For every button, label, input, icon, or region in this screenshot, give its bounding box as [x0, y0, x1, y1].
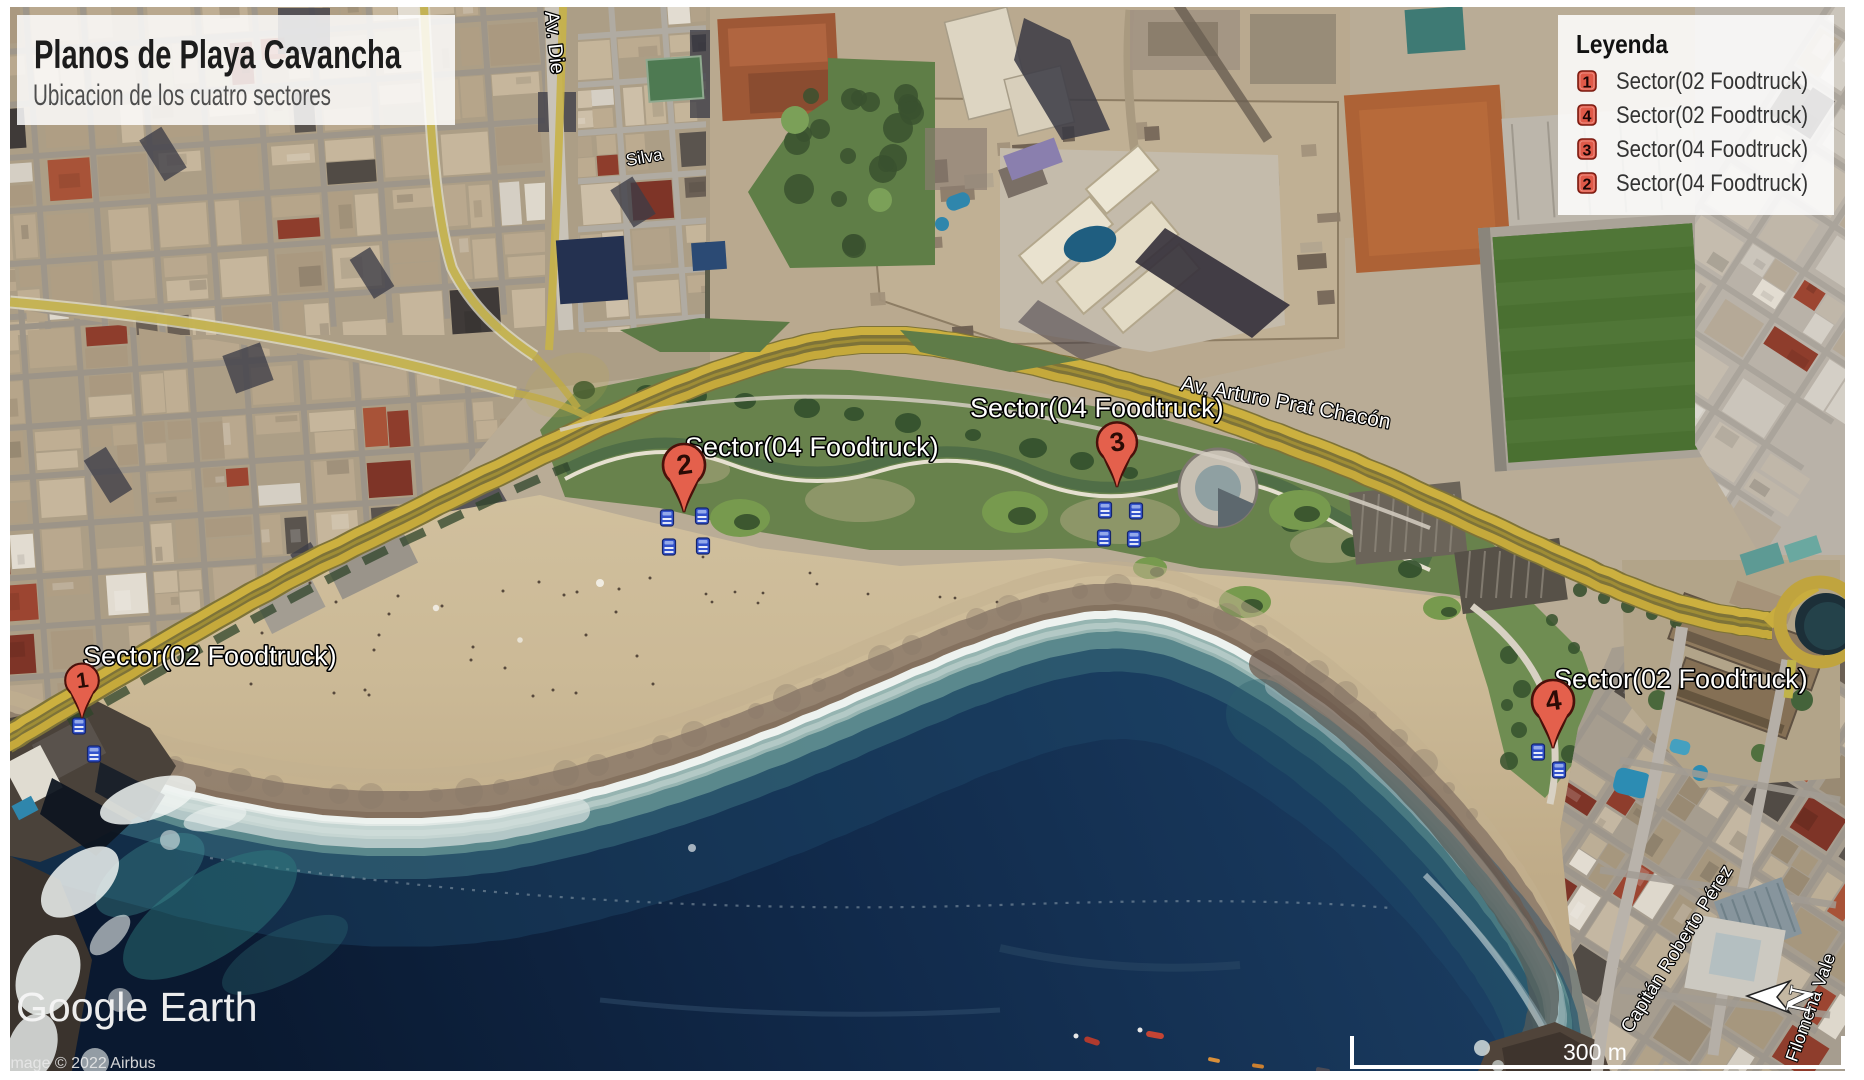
- svg-text:Leyenda: Leyenda: [1576, 29, 1668, 59]
- svg-text:Sector(04 Foodtruck): Sector(04 Foodtruck): [1616, 170, 1808, 197]
- svg-text:1: 1: [1583, 75, 1592, 92]
- svg-text:Planos de Playa Cavancha: Planos de Playa Cavancha: [34, 33, 402, 77]
- svg-text:Sector(02 Foodtruck): Sector(02 Foodtruck): [83, 641, 337, 671]
- svg-text:Ubicacion de los cuatro sector: Ubicacion de los cuatro sectores: [33, 79, 331, 112]
- svg-text:Sector(04 Foodtruck): Sector(04 Foodtruck): [1616, 136, 1808, 163]
- svg-text:Sector(02 Foodtruck): Sector(02 Foodtruck): [1616, 102, 1808, 129]
- svg-text:2: 2: [1583, 177, 1592, 194]
- svg-text:Sector(02 Foodtruck): Sector(02 Foodtruck): [1554, 664, 1808, 694]
- svg-text:4: 4: [1583, 109, 1592, 126]
- svg-text:Sector(04 Foodtruck): Sector(04 Foodtruck): [685, 432, 939, 462]
- svg-text:Sector(04 Foodtruck): Sector(04 Foodtruck): [970, 393, 1224, 423]
- svg-text:Image © 2022 Airbus: Image © 2022 Airbus: [6, 1055, 156, 1072]
- svg-text:3: 3: [1583, 143, 1592, 160]
- svg-text:Sector(02 Foodtruck): Sector(02 Foodtruck): [1616, 68, 1808, 95]
- svg-text:Google Earth: Google Earth: [16, 984, 258, 1030]
- svg-text:300 m: 300 m: [1563, 1039, 1627, 1065]
